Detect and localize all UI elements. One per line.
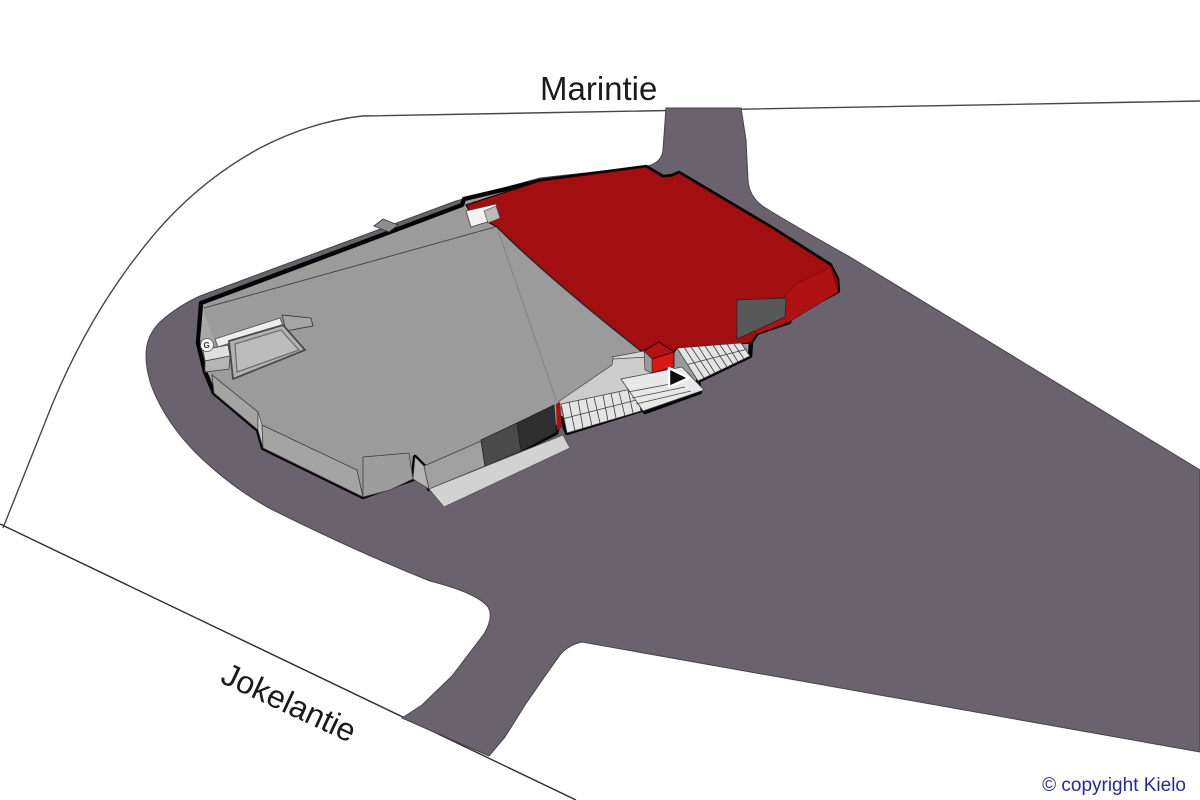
svg-text:Marintie: Marintie <box>540 70 657 107</box>
svg-text:G: G <box>204 341 210 350</box>
svg-text:© copyright Kielo: © copyright Kielo <box>1042 775 1186 796</box>
